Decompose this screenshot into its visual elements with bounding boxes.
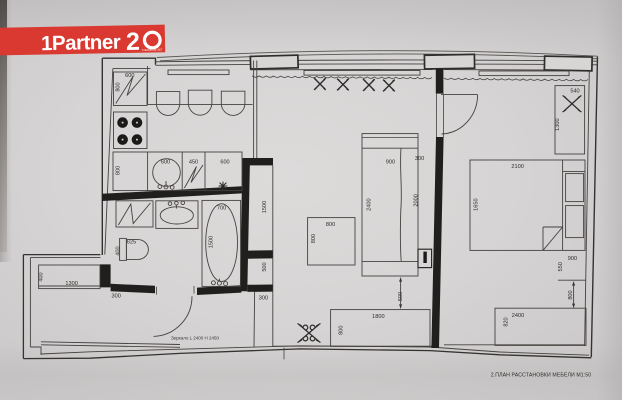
svg-text:Зеркало L 2400 H 2450: Зеркало L 2400 H 2450 — [171, 336, 220, 341]
svg-text:600: 600 — [161, 160, 170, 166]
svg-text:800: 800 — [311, 234, 317, 243]
svg-text:400: 400 — [115, 246, 121, 255]
svg-text:С ВАМИ 20 ЛЕТ: С ВАМИ 20 ЛЕТ — [142, 48, 163, 52]
svg-text:1800: 1800 — [372, 314, 384, 320]
svg-text:400: 400 — [39, 272, 45, 281]
svg-text:300: 300 — [415, 156, 424, 162]
svg-text:900: 900 — [386, 160, 395, 166]
svg-text:625: 625 — [127, 240, 136, 246]
svg-text:540: 540 — [570, 88, 579, 94]
svg-text:500: 500 — [398, 292, 404, 301]
svg-text:1300: 1300 — [555, 118, 561, 130]
svg-text:600: 600 — [125, 73, 134, 79]
svg-text:300: 300 — [112, 293, 121, 299]
svg-text:600: 600 — [220, 160, 229, 166]
svg-text:2: 2 — [126, 28, 140, 56]
svg-text:2000: 2000 — [413, 194, 419, 206]
svg-text:820: 820 — [504, 317, 510, 326]
svg-text:1500: 1500 — [262, 201, 268, 213]
svg-text:1650: 1650 — [474, 198, 480, 210]
svg-text:300: 300 — [259, 296, 268, 302]
svg-text:1300: 1300 — [65, 281, 77, 287]
svg-text:800: 800 — [326, 222, 335, 228]
svg-text:800: 800 — [338, 326, 344, 335]
svg-text:2100: 2100 — [511, 164, 523, 170]
svg-text:500: 500 — [262, 262, 268, 271]
svg-text:450: 450 — [189, 160, 198, 166]
svg-text:2400: 2400 — [367, 198, 373, 210]
svg-text:700: 700 — [217, 205, 226, 211]
svg-text:2.ПЛАН РАССТАНОВКИ МЕБЕЛИ М1: 2.ПЛАН РАССТАНОВКИ МЕБЕЛИ М1:50 — [491, 373, 592, 379]
svg-text:1500: 1500 — [209, 236, 215, 248]
svg-text:800: 800 — [568, 290, 574, 299]
svg-text:1Partner: 1Partner — [41, 31, 121, 56]
svg-text:800: 800 — [116, 166, 122, 175]
svg-text:800: 800 — [116, 82, 122, 91]
svg-text:2400: 2400 — [512, 313, 524, 319]
svg-text:900: 900 — [568, 256, 577, 262]
svg-text:550: 550 — [558, 262, 564, 271]
